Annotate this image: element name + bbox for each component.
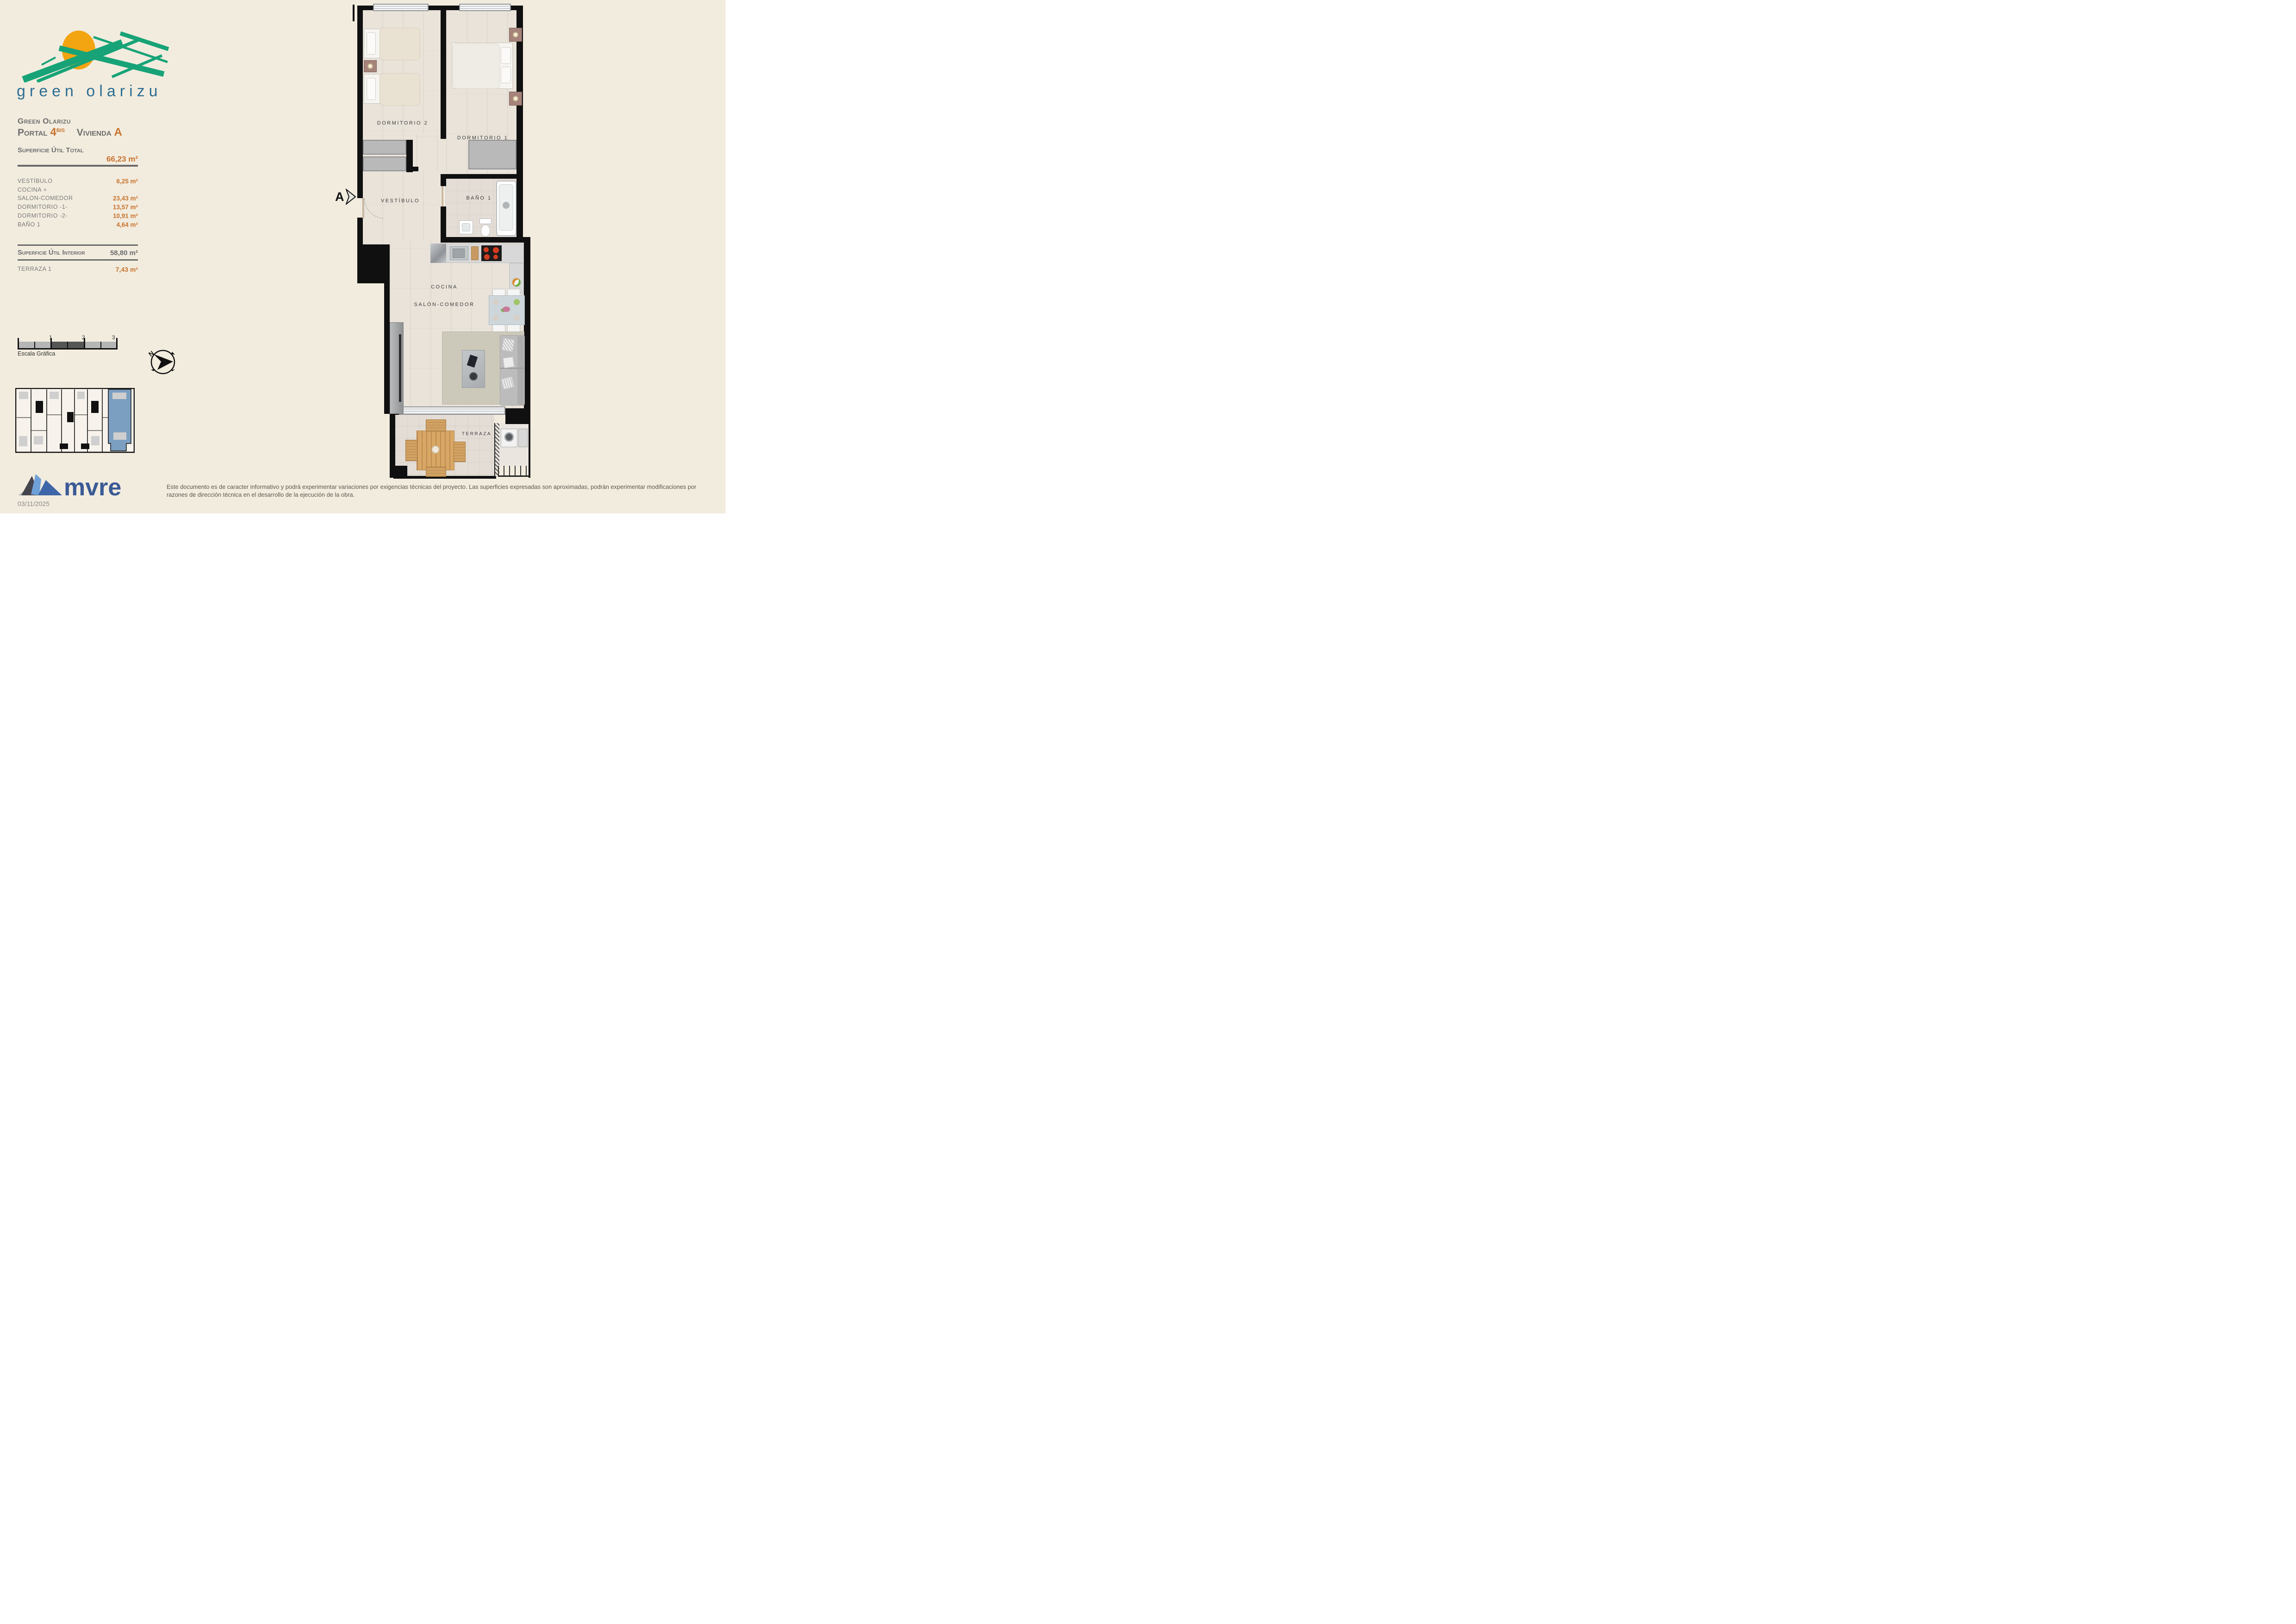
wall-segment xyxy=(406,140,413,172)
terrace-area-value: 7,43 m² xyxy=(116,266,138,273)
cutting-board xyxy=(471,246,479,260)
terrace-chair xyxy=(454,442,466,462)
scale-tick xyxy=(84,338,85,348)
portal-label: Portal xyxy=(18,127,48,138)
table-flowers xyxy=(503,306,510,312)
bathtub-drain xyxy=(503,202,510,209)
scale-tick xyxy=(18,338,19,348)
interior-area-label: Superficie Útil Interior xyxy=(18,249,85,257)
divider xyxy=(18,259,138,261)
area-row: SALON-COMEDOR 23,43 m² xyxy=(18,195,138,202)
room-label-terraza: TERRAZA xyxy=(457,431,496,437)
decor-tray xyxy=(469,372,478,381)
wall-segment xyxy=(446,174,516,179)
room-label-vestibulo: VESTÍBULO xyxy=(366,198,435,204)
area-row: DORMITORIO -2- 10,91 m² xyxy=(18,212,138,219)
room-area: 10,91 m² xyxy=(113,212,138,219)
terrace-area-row: TERRAZA 1 7,43 m² xyxy=(18,266,138,273)
scale-tick xyxy=(100,342,101,348)
wall-segment xyxy=(395,466,407,477)
scale-caption: Escala Gráfica xyxy=(18,350,55,357)
place-setting xyxy=(493,315,499,321)
page-title: Green Olarizu xyxy=(18,117,71,126)
portal-suffix: BIS xyxy=(56,128,65,133)
terrace-railing xyxy=(498,466,530,477)
area-row: VESTÍBULO 6,25 m² xyxy=(18,178,138,185)
wall-segment xyxy=(505,414,530,424)
area-row: COCINA + xyxy=(18,187,138,193)
room-label-salon: SALÓN-COMEDOR xyxy=(407,302,481,307)
project-logo xyxy=(15,21,172,82)
entrance-door-leaf xyxy=(362,198,364,219)
bed-pillow xyxy=(367,78,376,100)
room-label-dormitorio2: DORMITORIO 2 xyxy=(366,120,440,126)
divider xyxy=(18,165,138,167)
disclaimer-line: Este documento es de caracter informativ… xyxy=(167,483,717,491)
toilet-tank xyxy=(479,219,492,224)
wardrobe xyxy=(363,140,406,155)
bed-pillow xyxy=(501,47,511,64)
wardrobe xyxy=(363,156,406,171)
wall-segment xyxy=(390,408,395,478)
room-name: DORMITORIO -2- xyxy=(18,212,68,219)
disclaimer-line: razones de dirección técnica en el desar… xyxy=(167,491,717,499)
sliding-door-icon xyxy=(399,406,505,415)
north-compass-icon: N xyxy=(148,347,177,376)
brush-stroke-icon xyxy=(23,33,168,81)
wall-segment xyxy=(384,282,390,414)
vivienda-label: Vivienda xyxy=(77,127,112,138)
bathroom-door-leaf xyxy=(442,186,443,206)
mvre-wordmark: mvre xyxy=(64,474,121,498)
scale-tick xyxy=(34,342,35,348)
section-label: A xyxy=(335,190,344,204)
lamp-icon xyxy=(367,63,373,69)
room-label-dormitorio1: DORMITORIO 1 xyxy=(448,135,517,141)
section-mark: A xyxy=(335,189,356,205)
scale-tick xyxy=(50,338,52,348)
scale-tick xyxy=(116,338,118,348)
sink-basin xyxy=(453,249,465,258)
room-area: 6,25 m² xyxy=(116,178,138,185)
window-icon xyxy=(459,4,511,11)
interior-area-row: Superficie Útil Interior 58,80 m² xyxy=(18,249,138,257)
kitchen-module xyxy=(430,244,446,263)
room-name: COCINA + xyxy=(18,187,47,193)
tv-unit xyxy=(390,322,404,414)
sofa-pillow xyxy=(502,338,515,352)
wall-segment xyxy=(357,218,363,248)
key-plan xyxy=(15,388,135,454)
fruit-bowl-icon xyxy=(512,278,521,287)
unit-title: Portal 4BIS Vivienda A xyxy=(18,126,122,139)
tv-screen-icon xyxy=(399,334,401,402)
interior-area-value: 58,80 m² xyxy=(110,249,138,257)
burner xyxy=(484,254,490,260)
wall-segment xyxy=(357,244,390,283)
terrace-chair xyxy=(426,419,446,431)
toilet-icon xyxy=(481,225,490,237)
terrace-area-label: TERRAZA 1 xyxy=(18,266,51,273)
bed-duvet xyxy=(380,28,420,60)
room-name: VESTÍBULO xyxy=(18,178,53,185)
burner xyxy=(493,247,499,253)
place-setting xyxy=(514,299,520,305)
area-row: DORMITORIO -1- 13,57 m² xyxy=(18,204,138,211)
wall-segment xyxy=(441,174,446,186)
room-name: SALON-COMEDOR xyxy=(18,195,73,202)
section-line-mark xyxy=(353,5,355,21)
vivienda-letter: A xyxy=(114,126,122,138)
scale-baseline xyxy=(18,348,118,350)
bed-duvet xyxy=(380,73,420,106)
wardrobe xyxy=(468,140,516,169)
lamp-icon xyxy=(513,96,518,101)
sofa-backrest xyxy=(517,336,524,405)
room-name: DORMITORIO -1- xyxy=(18,204,68,211)
room-label-cocina: COCINA xyxy=(417,284,472,290)
sink-bowl xyxy=(462,223,470,231)
utility-cabinet xyxy=(518,429,528,447)
divider xyxy=(18,244,138,246)
sofa-pillow xyxy=(503,357,515,369)
floor-plan-sheet: green olarizu Green Olarizu Portal 4BIS … xyxy=(0,0,726,513)
room-area: 13,57 m² xyxy=(113,204,138,211)
wall-segment xyxy=(441,206,446,241)
place-setting xyxy=(514,315,520,321)
place-setting xyxy=(493,299,499,305)
scale-tick xyxy=(67,342,68,348)
section-arrow-icon xyxy=(345,189,356,205)
bed-duvet xyxy=(453,44,500,89)
terrace-chair xyxy=(405,440,417,461)
bed-pillow xyxy=(501,67,511,83)
burner xyxy=(484,247,489,252)
window-icon xyxy=(373,4,429,11)
lamp-icon xyxy=(513,32,518,37)
apartment-plan: A DORMITORIO 2 DORMITORIO 1 VESTÍBULO BA… xyxy=(347,4,532,483)
total-area-label: Superficie Útil Total xyxy=(18,146,84,154)
mvre-logo: mvre xyxy=(18,474,126,498)
total-area-value: 66,23 m² xyxy=(18,155,138,164)
scale-bar: 1 2 3 m. Escala Gráfica xyxy=(18,335,118,357)
room-area: 23,43 m² xyxy=(113,195,138,202)
logo-wordmark: green olarizu xyxy=(17,82,162,100)
portal-number: 4 xyxy=(50,126,56,138)
wall-segment xyxy=(524,241,530,408)
plan-date: 03/11/2025 xyxy=(18,500,50,507)
wall-segment xyxy=(441,6,446,139)
room-label-bano1: BAÑO 1 xyxy=(454,195,504,201)
room-name: BAÑO 1 xyxy=(18,221,40,228)
area-row: BAÑO 1 4,64 m² xyxy=(18,221,138,228)
terrace-plate xyxy=(431,445,440,454)
sofa-seam xyxy=(500,368,524,369)
burner xyxy=(493,255,498,259)
bed-pillow xyxy=(367,32,376,55)
terrace-chair xyxy=(426,467,446,477)
room-area: 4,64 m² xyxy=(116,221,138,228)
washer-door xyxy=(504,432,514,442)
